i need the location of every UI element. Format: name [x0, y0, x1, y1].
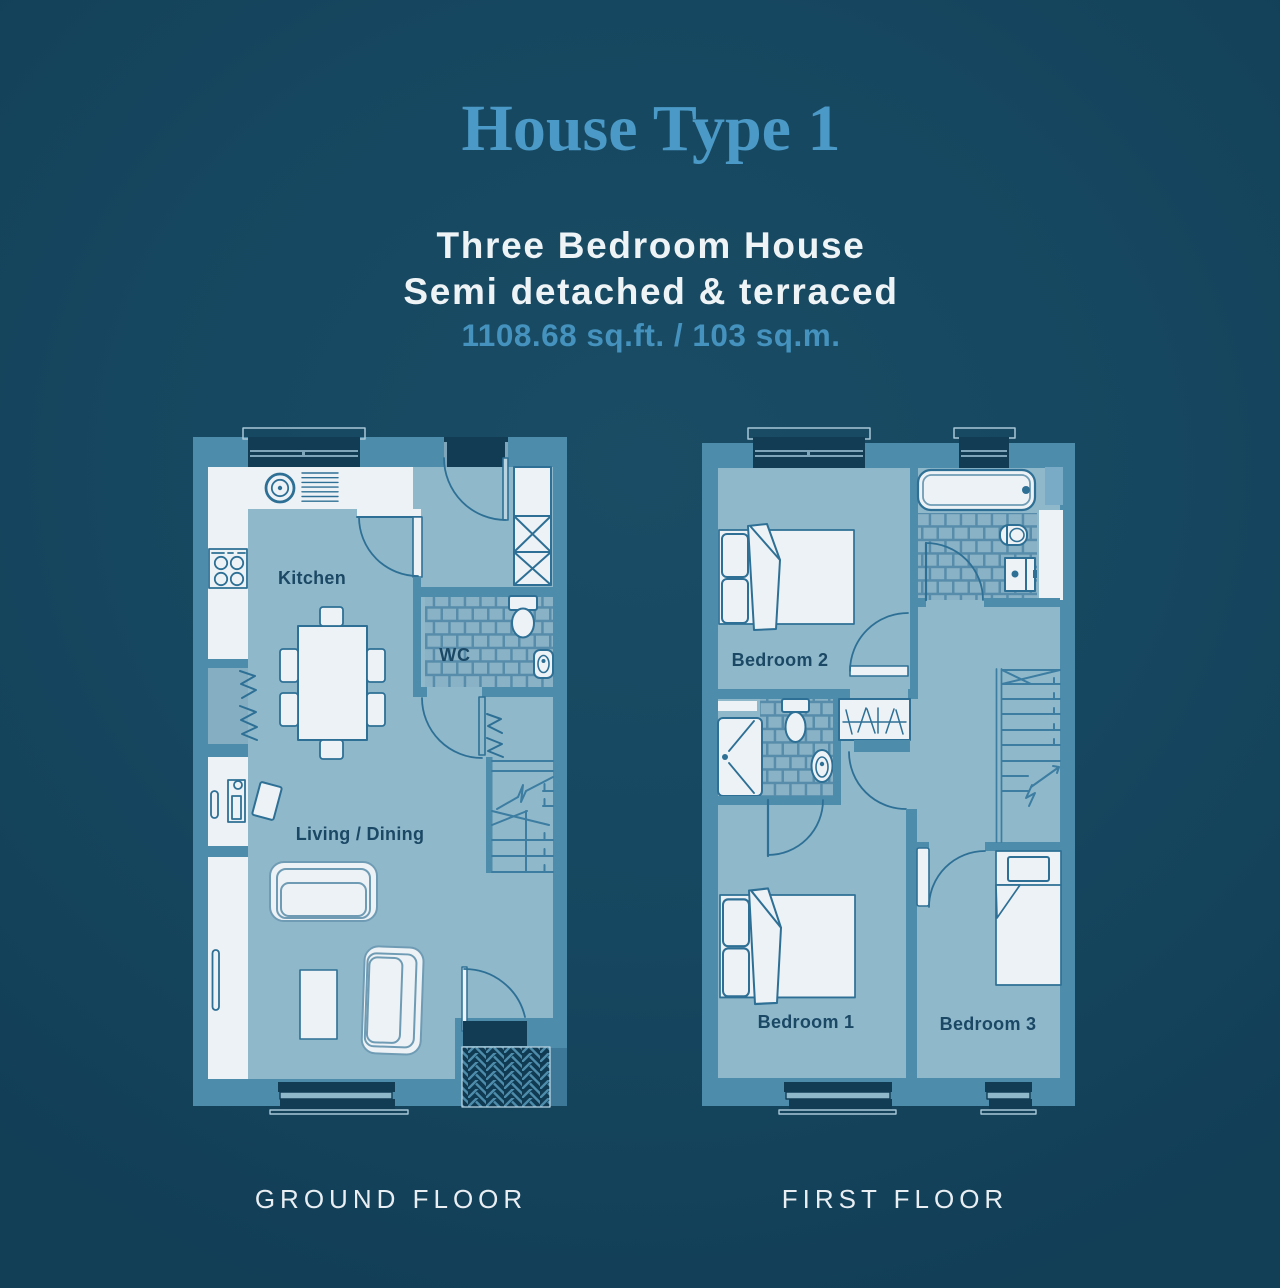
svg-text:Living / Dining: Living / Dining — [296, 824, 425, 844]
svg-text:Kitchen: Kitchen — [278, 568, 346, 588]
svg-text:Bedroom 3: Bedroom 3 — [940, 1014, 1037, 1034]
svg-text:WC: WC — [439, 645, 471, 665]
svg-text:Bedroom 1: Bedroom 1 — [758, 1012, 855, 1032]
svg-text:Bedroom 2: Bedroom 2 — [732, 650, 829, 670]
